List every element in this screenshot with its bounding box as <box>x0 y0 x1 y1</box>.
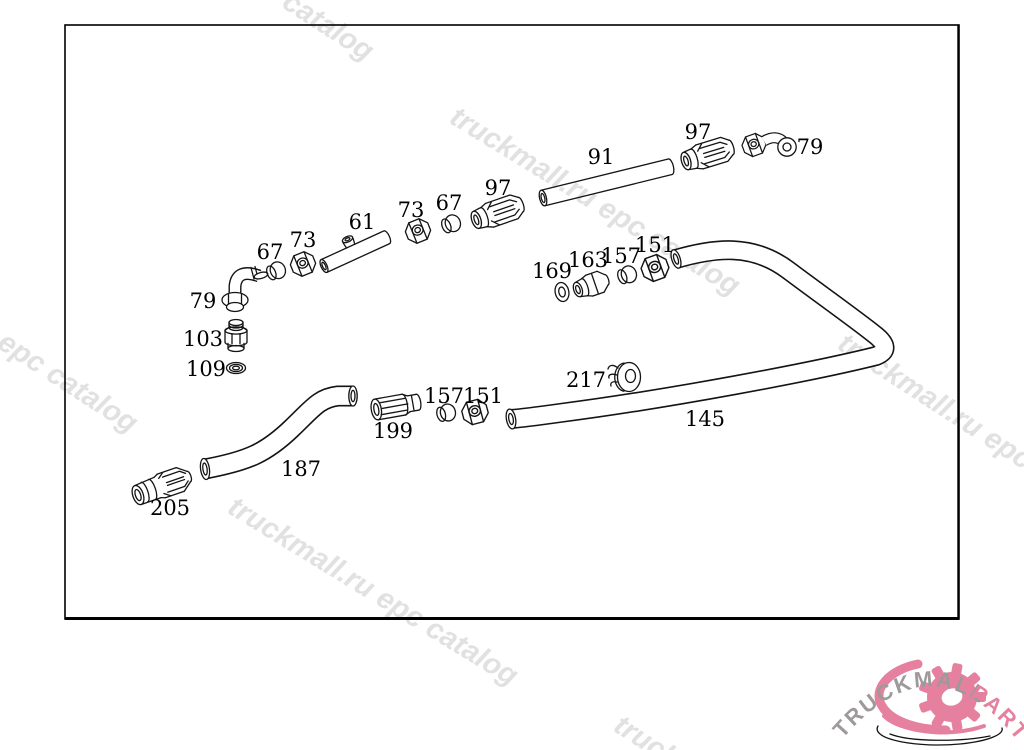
part-103-fitting-drawing <box>225 320 247 352</box>
part-label-217[interactable]: 217 <box>566 368 606 392</box>
hose-187-drawing <box>199 386 357 480</box>
part-label-67-right[interactable]: 67 <box>436 191 463 215</box>
part-label-97-right[interactable]: 97 <box>685 120 712 144</box>
part-label-151-mid[interactable]: 151 <box>635 233 675 257</box>
logo-swoosh-gray-2 <box>890 734 990 740</box>
part-79-elbow-right-drawing <box>740 131 796 158</box>
part-label-79-left[interactable]: 79 <box>190 289 217 313</box>
part-label-169[interactable]: 169 <box>532 259 572 283</box>
part-79-elbow-left-drawing <box>222 267 269 312</box>
watermark-text: truckmall.ru epc catalog <box>82 0 379 68</box>
part-label-67-left[interactable]: 67 <box>257 240 284 264</box>
part-label-97-left[interactable]: 97 <box>485 176 512 200</box>
part-163-fitting-drawing <box>570 269 612 302</box>
part-217-clip-drawing <box>608 363 641 392</box>
diagram-border <box>65 25 959 619</box>
part-label-187[interactable]: 187 <box>281 457 321 481</box>
watermark-text: truckmall.ru epc catalog <box>222 491 523 693</box>
part-label-151-bottom[interactable]: 151 <box>463 384 503 408</box>
part-109-washer-drawing <box>227 363 246 374</box>
part-label-109[interactable]: 109 <box>186 357 226 381</box>
part-73-nut-left-drawing <box>288 249 318 278</box>
part-label-73-right[interactable]: 73 <box>398 198 425 222</box>
part-169-washer-drawing <box>553 281 570 303</box>
part-label-205[interactable]: 205 <box>150 496 190 520</box>
part-label-91[interactable]: 91 <box>588 145 615 169</box>
part-label-61[interactable]: 61 <box>349 210 376 234</box>
part-label-145[interactable]: 145 <box>685 407 725 431</box>
part-label-73-left[interactable]: 73 <box>290 228 317 252</box>
watermark-text: truckmall.ru epc catalog <box>0 231 144 440</box>
parts-diagram: truckmall.ru epc catalog truckmall.ru ep… <box>0 0 1024 750</box>
part-199-fitting-drawing <box>370 391 423 420</box>
watermark-layer: truckmall.ru epc catalog truckmall.ru ep… <box>0 0 1024 750</box>
part-label-79-right[interactable]: 79 <box>797 135 824 159</box>
part-label-157-bottom[interactable]: 157 <box>424 384 464 408</box>
part-label-199[interactable]: 199 <box>373 419 413 443</box>
part-67-nut-right-drawing <box>439 213 463 236</box>
part-label-103[interactable]: 103 <box>183 327 223 351</box>
